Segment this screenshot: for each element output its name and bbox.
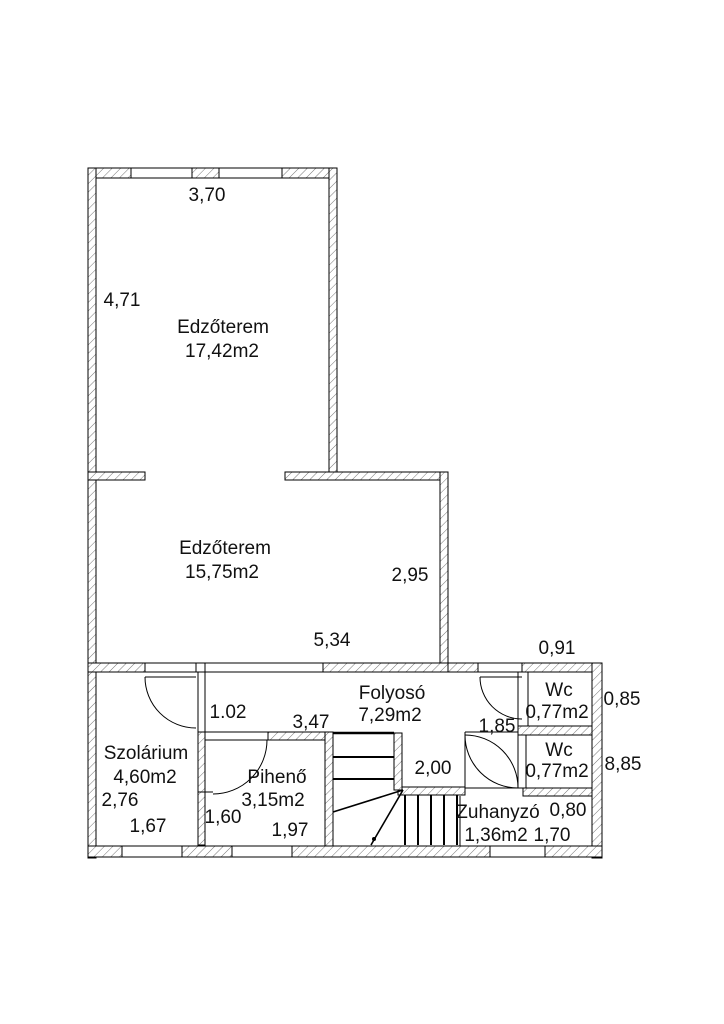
floorplan-drawing bbox=[0, 0, 724, 1024]
dim-label-2-00: 2,00 bbox=[415, 758, 452, 780]
room-label-gym-upper-name: Edzőterem bbox=[177, 317, 269, 339]
room-label-rest-area: 3,15m2 bbox=[241, 790, 304, 812]
room-label-wc1-name: Wc bbox=[545, 680, 572, 702]
dim-label-8-85: 8,85 bbox=[605, 754, 642, 776]
room-label-wc2-name: Wc bbox=[545, 740, 572, 762]
dim-label-3-47: 3,47 bbox=[293, 712, 330, 734]
dim-label-3-70: 3,70 bbox=[189, 185, 226, 207]
room-label-corridor-name: Folyosó bbox=[359, 683, 426, 705]
dim-label-1-70: 1,70 bbox=[534, 825, 571, 847]
dim-label-1-67: 1,67 bbox=[130, 816, 167, 838]
floorplan-page: Edzőterem 17,42m2 Edzőterem 15,75m2 Foly… bbox=[0, 0, 724, 1024]
room-label-wc1-area: 0,77m2 bbox=[525, 702, 588, 724]
dim-label-0-80: 0,80 bbox=[550, 800, 587, 822]
room-label-gym-upper-area: 17,42m2 bbox=[185, 341, 259, 363]
room-label-solarium-name: Szolárium bbox=[104, 743, 188, 765]
dim-label-2-76: 2,76 bbox=[102, 790, 139, 812]
room-label-solarium-area: 4,60m2 bbox=[113, 767, 176, 789]
stair-dot bbox=[372, 837, 376, 841]
room-label-corridor-area: 7,29m2 bbox=[358, 705, 421, 727]
dim-label-1-02: 1.02 bbox=[210, 702, 247, 724]
room-label-shower-area: 1,36m2 bbox=[464, 825, 527, 847]
room-label-gym-lower-area: 15,75m2 bbox=[185, 562, 259, 584]
dim-label-0-91: 0,91 bbox=[539, 638, 576, 660]
dim-label-0-85: 0,85 bbox=[604, 689, 641, 711]
dim-label-2-95: 2,95 bbox=[392, 565, 429, 587]
room-label-shower-name: Zuhanyzó bbox=[456, 802, 539, 824]
room-label-gym-lower-name: Edzőterem bbox=[179, 538, 271, 560]
dim-label-5-34: 5,34 bbox=[314, 630, 351, 652]
dim-label-4-71: 4,71 bbox=[104, 290, 141, 312]
dim-label-1-85: 1,85 bbox=[479, 716, 516, 738]
dim-label-1-97: 1,97 bbox=[272, 820, 309, 842]
room-label-wc2-area: 0,77m2 bbox=[525, 761, 588, 783]
dim-label-1-60: 1,60 bbox=[205, 807, 242, 829]
room-label-rest-name: Pihenő bbox=[247, 767, 306, 789]
